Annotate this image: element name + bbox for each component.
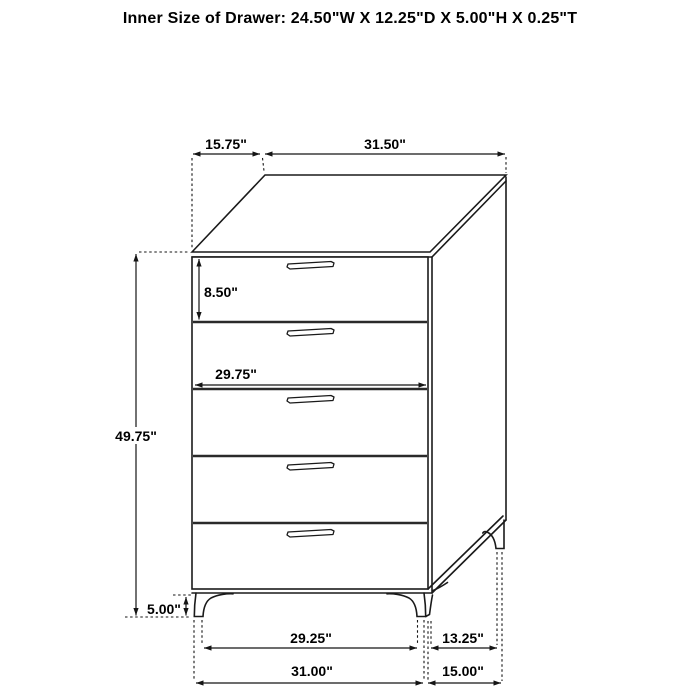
side-apron-curve [433,583,448,591]
dim-label-body-height: 49.75" [115,428,157,444]
chest-top-face [192,175,506,252]
front-right-leg [387,593,426,617]
side-panel-bottom-edge-upper [428,516,503,589]
dim-label-drawer-height: 8.50" [204,284,238,300]
dim-label-base-width: 31.00" [291,663,333,679]
side-panel-bottom-edge-lower [432,520,506,593]
dim-label-top-width: 31.50" [364,136,406,152]
chest-drawing [192,175,506,617]
chest-dimension-diagram: 15.75" 31.50" 8.50" 29.75" 49.75" 5.00" … [0,0,700,700]
dim-label-top-depth: 15.75" [205,136,247,152]
chest-front-face [192,257,428,589]
dim-label-base-depth: 15.00" [442,663,484,679]
dim-label-inner-width: 29.75" [215,366,257,382]
dim-label-front-leg-span: 29.25" [290,630,332,646]
front-left-leg [194,593,233,617]
dim-label-leg-height: 5.00" [147,601,181,617]
front-right-leg-side-profile [426,595,433,617]
dim-label-side-leg-span: 13.25" [442,630,484,646]
diagram-page: Inner Size of Drawer: 24.50"W X 12.25"D … [0,0,700,700]
